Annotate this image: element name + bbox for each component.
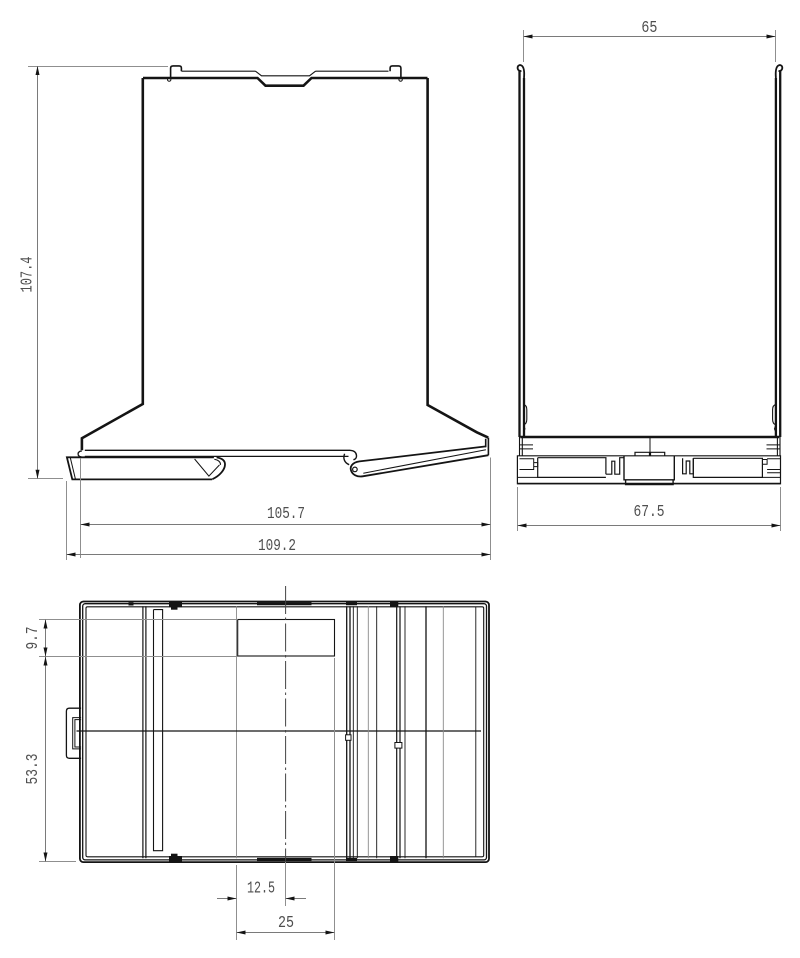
- svg-text:25: 25: [278, 914, 294, 933]
- svg-text:107.4: 107.4: [19, 257, 38, 293]
- svg-text:12.5: 12.5: [247, 880, 275, 899]
- svg-text:65: 65: [641, 19, 657, 38]
- svg-text:9.7: 9.7: [24, 627, 43, 650]
- svg-text:67.5: 67.5: [634, 503, 665, 522]
- svg-text:53.3: 53.3: [24, 754, 43, 785]
- svg-text:105.7: 105.7: [267, 505, 305, 524]
- svg-text:109.2: 109.2: [258, 537, 296, 556]
